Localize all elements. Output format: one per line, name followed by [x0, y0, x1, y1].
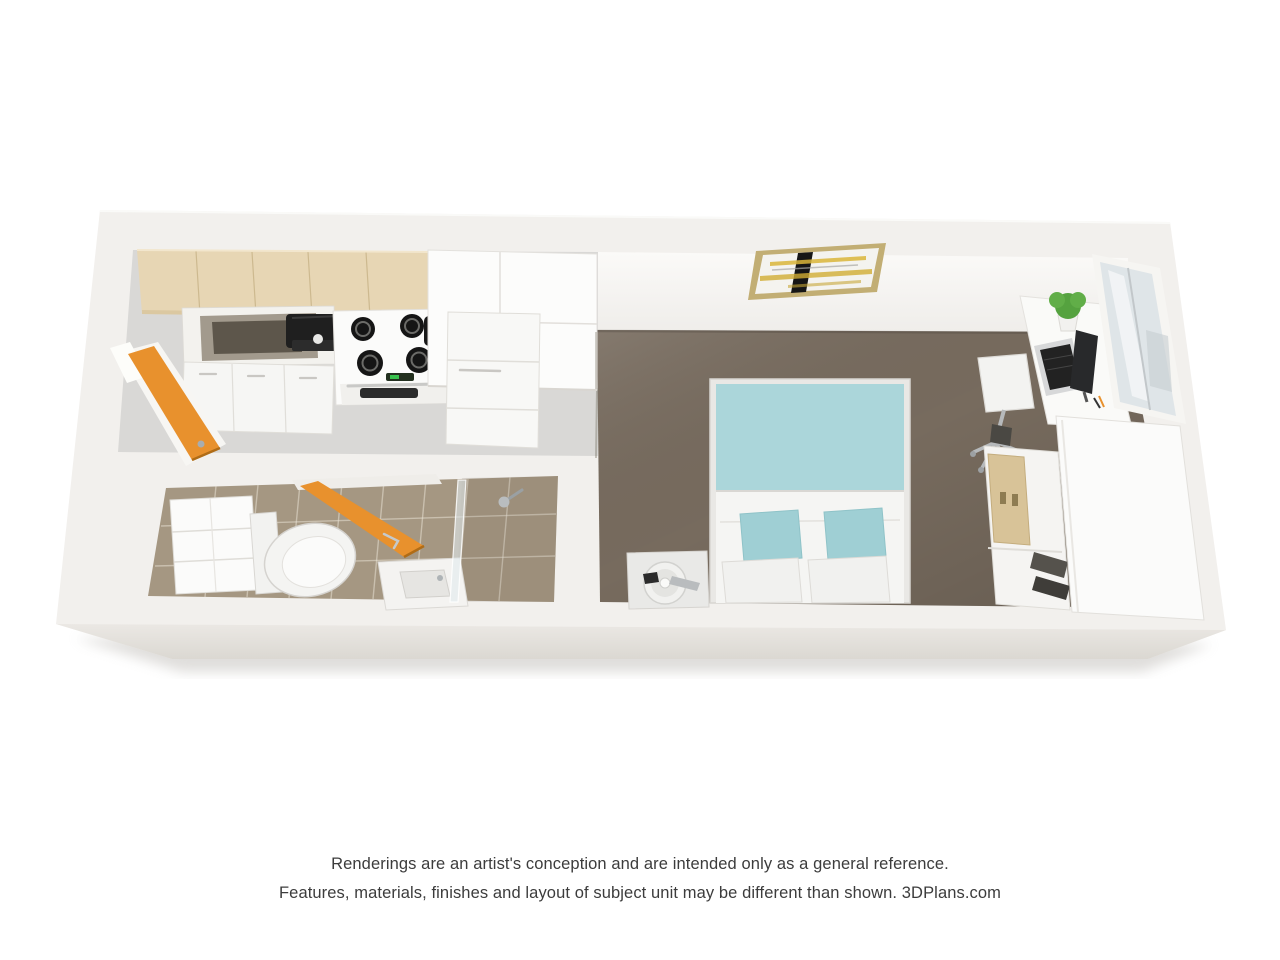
oven-handle — [348, 384, 440, 386]
box-handle-slot — [1000, 492, 1006, 504]
window-building-hint — [1146, 330, 1172, 392]
bed — [710, 379, 910, 603]
wall-bevel-front — [56, 624, 1226, 659]
pillow-teal-right — [824, 508, 886, 560]
wall-art — [748, 243, 886, 300]
bed-duvet — [716, 384, 904, 490]
vanity-faucet — [437, 575, 443, 581]
disclaimer-line-1: Renderings are an artist's conception an… — [0, 850, 1280, 879]
nightstand — [627, 551, 709, 609]
oven-window — [360, 388, 418, 398]
stove-display-digits — [390, 375, 399, 379]
pillow-teal-left — [740, 510, 802, 562]
pillow-white-left — [722, 558, 802, 603]
shower-floor-tint — [456, 476, 558, 602]
entry-door-handle — [198, 441, 205, 448]
floorplan-rendering — [0, 0, 1280, 960]
storage-box-tan — [988, 454, 1030, 545]
smartphone — [643, 572, 659, 584]
floor-seam — [596, 388, 597, 458]
box-handle-slot-2 — [1012, 494, 1018, 506]
chair-back — [978, 354, 1034, 412]
shower-head — [499, 497, 510, 508]
pillow-white-right — [808, 556, 890, 603]
screenshot-canvas: Renderings are an artist's conception an… — [0, 0, 1280, 960]
storage-shelf — [170, 496, 258, 594]
floorplan-svg — [0, 0, 1280, 960]
dishwasher — [446, 312, 540, 448]
disclaimer-line-2: Features, materials, finishes and layout… — [0, 879, 1280, 908]
disclaimer: Renderings are an artist's conception an… — [0, 850, 1280, 908]
wardrobe — [1056, 416, 1204, 620]
fan-hub — [660, 578, 670, 588]
